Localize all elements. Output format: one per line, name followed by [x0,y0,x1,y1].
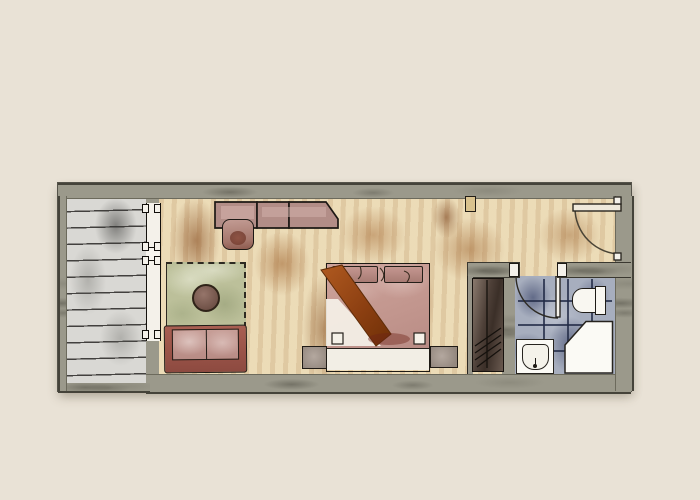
sofa [164,325,247,374]
pillow [384,266,423,283]
sofa-cushion-divider [205,330,207,359]
wall-bathroom-top-right [557,262,631,278]
window-node [154,330,161,339]
bathroom-floor [515,276,615,374]
window-node [154,242,161,251]
nightstand-right [430,346,458,368]
desk-chair [222,219,254,250]
bed-headboard-strip [327,348,429,370]
wall-right [615,196,634,391]
side-table [192,284,220,312]
window-node [142,204,149,213]
balcony-deck [64,196,147,383]
window-node [142,256,149,265]
window-node [142,330,149,339]
chair-seat [230,231,246,245]
wall-bottom-balcony [58,383,150,393]
pillow [332,266,378,283]
bed [326,263,430,372]
wall-bottom [146,374,631,394]
closet [472,278,504,372]
wall-end-cap [557,263,567,277]
screenshot-root: { "description": "Hand-drawn watercolor … [0,0,700,500]
window-node [142,242,149,251]
bathroom-door [515,276,615,374]
wall-top [58,183,631,199]
window-node [154,256,161,265]
window-node [154,204,161,213]
wall-left [58,196,67,391]
entry-frame-post [465,196,476,212]
floor-plan [58,183,631,391]
sofa-cushions [172,329,239,361]
wall-end-cap [509,263,519,277]
window [146,203,161,341]
